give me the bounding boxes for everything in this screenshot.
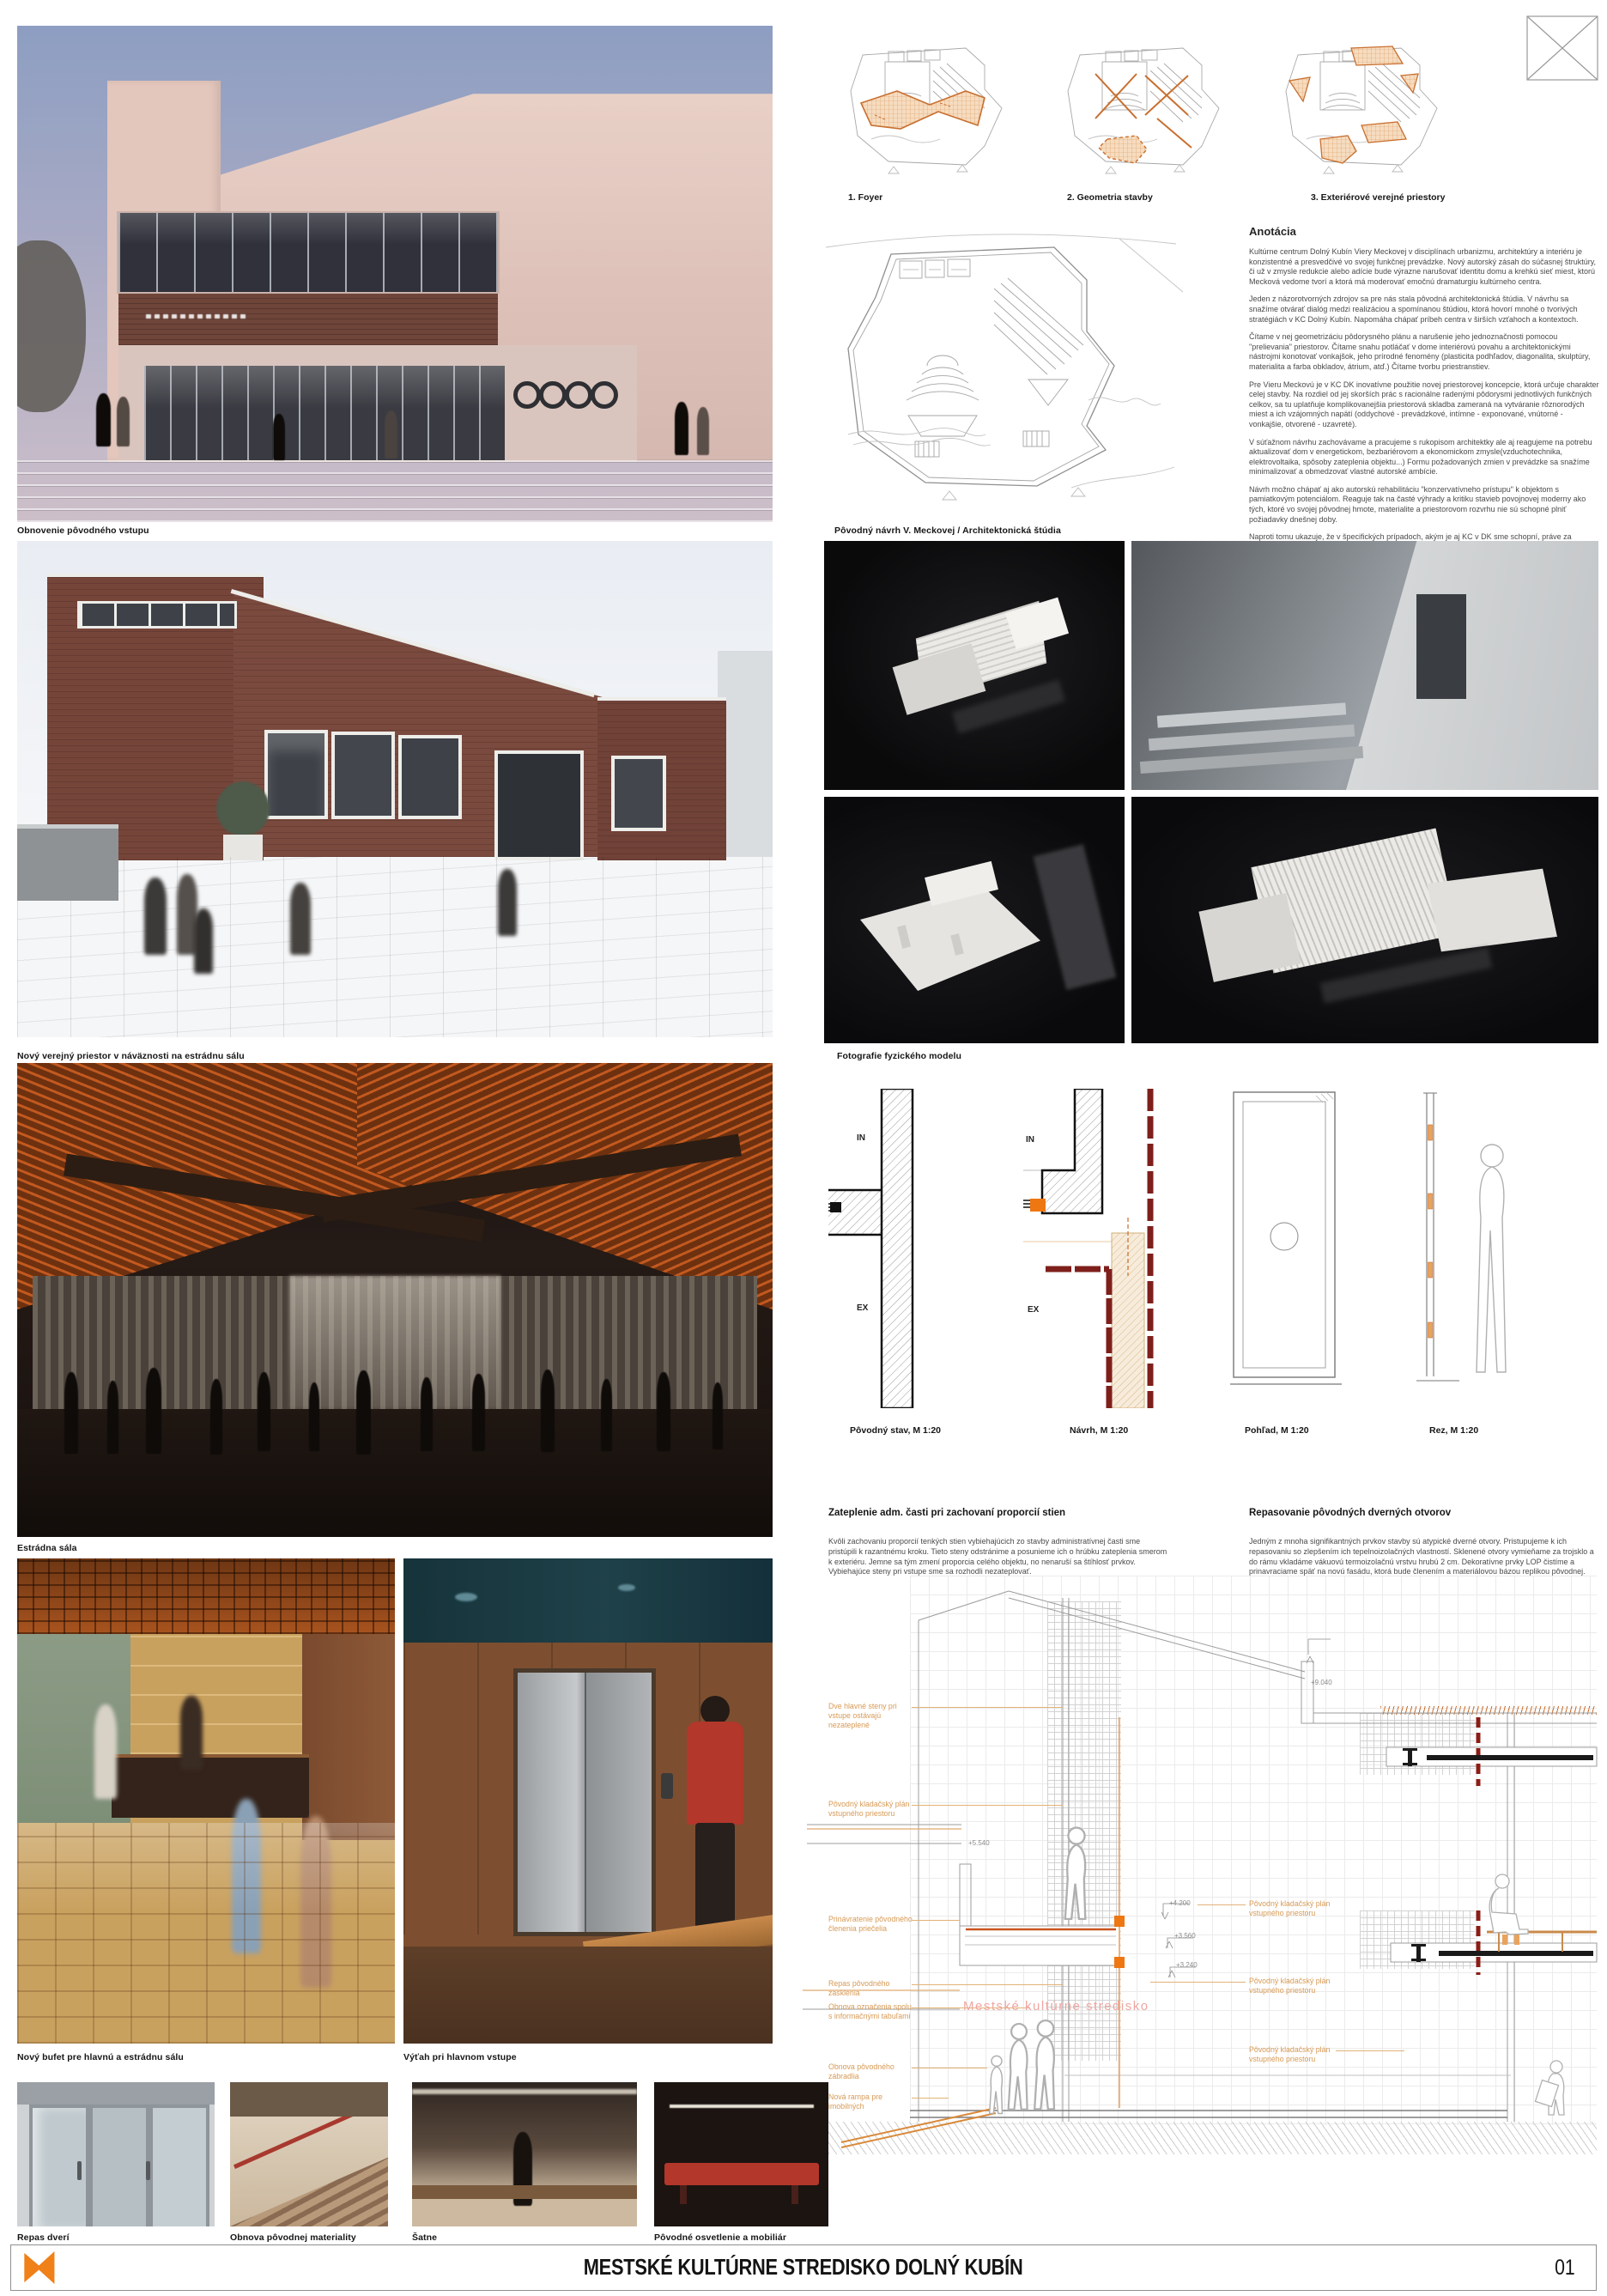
window — [398, 735, 462, 819]
plan-label-foyer: 1. Foyer — [848, 192, 882, 203]
model-step — [1157, 702, 1346, 727]
plan-label-geometry: 2. Geometria stavby — [1067, 192, 1153, 203]
section-label: Pôvodný kladačský plán vstupného priesto… — [1249, 1977, 1333, 1995]
page-number: 01 — [1555, 2256, 1575, 2281]
pavement — [17, 857, 773, 1037]
caption-floorplan: Pôvodný návrh V. Meckovej / Architektoni… — [834, 525, 1061, 536]
model-shadow — [1034, 844, 1117, 990]
model-floor-plane — [860, 886, 1040, 991]
dancer — [107, 1381, 118, 1454]
detail-door-elevation — [1230, 1089, 1342, 1398]
photo-entrance-restored — [17, 26, 773, 522]
model-photo-1 — [824, 541, 1125, 790]
dancer — [309, 1382, 319, 1451]
annotation-paragraph: Čítame v nej geometrizáciu pôdorysného p… — [1249, 332, 1599, 372]
presentation-board: Obnovenie pôvodného vstupu 1. Foyer 2. G… — [0, 0, 1607, 2296]
model-photo-2 — [1131, 541, 1598, 790]
leader-line — [1198, 1904, 1246, 1905]
pedestrian-blurred — [290, 883, 311, 955]
brick-band — [118, 294, 498, 345]
retaining-wall — [17, 824, 118, 901]
dancer — [421, 1377, 433, 1451]
in-label: IN — [857, 1133, 865, 1143]
leader-line — [912, 1805, 1063, 1806]
footer-bar: MESTSKÉ KULTÚRNE STREDISKO DOLNÝ KUBÍN 0… — [10, 2244, 1597, 2291]
leader-line — [912, 1984, 1063, 1985]
model-step — [1140, 746, 1363, 774]
in-label: IN — [1026, 1135, 1034, 1145]
detail-label-proposal: Návrh, M 1:20 — [1070, 1425, 1128, 1436]
text-block-title-doors: Repasovanie pôvodných dverných otvorov — [1249, 1508, 1451, 1518]
model-opening — [1416, 594, 1466, 699]
pedestrian — [273, 414, 285, 460]
caption-elevator: Výťah pri hlavnom vstupe — [403, 2052, 517, 2062]
section-label: Pôvodný kladačský plán vstupného priesto… — [1249, 1899, 1333, 1918]
caption-materiality: Obnova pôvodnej materiality — [230, 2232, 356, 2243]
model-volume — [1005, 598, 1069, 650]
transom — [17, 2082, 215, 2105]
annotation-paragraph: Kultúrne centrum Dolný Kubín Viery Mecko… — [1249, 247, 1599, 287]
floorplan-drawing — [814, 220, 1188, 512]
bench-leg — [791, 2185, 798, 2204]
annotation-paragraph: Návrh možno chápať aj ako autorskú rehab… — [1249, 485, 1599, 525]
dancer — [472, 1374, 485, 1451]
tree — [216, 781, 270, 836]
detail-door-section — [1408, 1089, 1537, 1402]
caption-lighting: Pôvodné osvetlenie a mobiliár — [654, 2232, 786, 2243]
photo-buffet — [17, 1558, 395, 2044]
level-dimension: +9.040 — [1311, 1679, 1332, 1686]
pedestrian — [96, 393, 111, 446]
annotation-paragraph: Jeden z názorotvorných zdrojov sa pre ná… — [1249, 295, 1599, 325]
light-bar — [670, 2105, 814, 2108]
model-volume — [1427, 859, 1557, 961]
caption-satne: Šatne — [412, 2232, 437, 2243]
bar-counter — [112, 1754, 309, 1818]
detail-label-section: Rez, M 1:20 — [1429, 1425, 1478, 1436]
level-dimension: +4.200 — [1169, 1899, 1191, 1907]
bench-leg — [680, 2185, 687, 2204]
caption-models: Fotografie fyzického modelu — [837, 1051, 961, 1061]
caption-doors: Repas dverí — [17, 2232, 70, 2243]
section-label: Pôvodný kladačský plán vstupného priesto… — [828, 1800, 913, 1819]
leader-line — [1336, 2050, 1404, 2051]
logo-circles — [513, 381, 616, 421]
wood-column — [302, 1634, 395, 1840]
window — [264, 730, 328, 819]
window-band — [118, 213, 498, 292]
detail-label-original: Pôvodný stav, M 1:20 — [850, 1425, 941, 1436]
aquarium-band — [403, 1558, 773, 1643]
section-label: Nová rampa pre imobilných — [828, 2093, 913, 2111]
detail-label-elevation: Pohľad, M 1:20 — [1245, 1425, 1309, 1436]
entrance-door — [494, 750, 584, 860]
model-wall-plane — [1346, 541, 1598, 790]
leader-line — [912, 2098, 949, 2099]
model-step — [1149, 725, 1355, 751]
dancer — [258, 1372, 270, 1451]
leader-line — [912, 2068, 987, 2068]
pedestrian — [697, 407, 709, 455]
pedestrian — [675, 402, 688, 455]
window — [331, 732, 395, 819]
window — [611, 756, 666, 831]
pedestrian-blurred — [194, 908, 213, 974]
photo-staircase — [230, 2082, 388, 2226]
window-glow — [289, 1276, 500, 1409]
section-linework — [790, 1541, 1607, 2237]
photo-satne — [412, 2082, 637, 2226]
steps — [17, 460, 773, 522]
dancer — [657, 1372, 670, 1451]
section-drawing — [790, 1541, 1607, 2237]
photo-lighting-furniture — [654, 2082, 828, 2226]
photo-new-public-space — [17, 541, 773, 1037]
section-label: Dve hlavné steny pri vstupe ostávajú nez… — [828, 1702, 913, 1730]
door-handle — [77, 2161, 82, 2180]
annotation-paragraph: Pre Vieru Meckovú je v KC DK inovatívne … — [1249, 380, 1599, 430]
pedestrian-blurred — [144, 878, 167, 955]
door-leaf — [149, 2105, 209, 2226]
section-label: Pôvodný kladačský plán vstupného priesto… — [1249, 2045, 1333, 2064]
elevator-door — [513, 1668, 656, 1936]
photo-elevator — [403, 1558, 773, 2044]
building-sign — [146, 314, 249, 319]
pedestrian — [117, 397, 130, 446]
dancer — [64, 1372, 78, 1454]
entrance-glazing — [144, 366, 505, 460]
photo-estradna-sala — [17, 1063, 773, 1537]
model-photo-4 — [1131, 797, 1598, 1043]
coffered-ceiling — [17, 1558, 395, 1634]
dancer — [210, 1379, 222, 1455]
person-blurred — [180, 1696, 203, 1770]
tiled-floor — [17, 1823, 395, 2044]
section-label: Obnova pôvodného zábradlia — [828, 2062, 913, 2081]
section-label: Prinávratenie pôvodného členenia priečel… — [828, 1915, 913, 1934]
pedestrian — [385, 410, 397, 459]
dancer — [356, 1370, 371, 1455]
bar-back-shelves — [130, 1634, 302, 1754]
leader-line — [912, 1707, 1063, 1708]
section-label: Obnova označenia spolu s informačnými ta… — [828, 2002, 913, 2021]
counter — [412, 2185, 637, 2199]
upper-wall-shadow — [230, 2082, 388, 2117]
detail-proposal — [1023, 1089, 1171, 1408]
board-title-wrap: MESTSKÉ KULTÚRNE STREDISKO DOLNÝ KUBÍN — [11, 2254, 1596, 2281]
plan-label-exterior: 3. Exteriérové verejné priestory — [1311, 192, 1445, 203]
plan-diagram-geometry — [1054, 36, 1239, 186]
leader-line — [912, 1920, 960, 1921]
caption-buffet: Nový bufet pre hlavnú a estrádnu sálu — [17, 2052, 184, 2062]
annotation-paragraph: V súťažnom návrhu zachovávame a pracujem… — [1249, 438, 1599, 477]
caption-entrance: Obnovenie pôvodného vstupu — [17, 525, 149, 536]
photo-doors — [17, 2082, 215, 2226]
model-volume — [893, 643, 986, 715]
ceiling-light — [412, 2089, 637, 2094]
dancer — [146, 1368, 161, 1454]
plan-diagram-exterior — [1272, 36, 1457, 186]
annotation-title: Anotácia — [1249, 225, 1599, 238]
trim-mark-icon — [1526, 15, 1598, 81]
call-button-panel — [661, 1773, 673, 1799]
dancer — [713, 1382, 723, 1449]
door-handle — [146, 2161, 150, 2180]
board-title: MESTSKÉ KULTÚRNE STREDISKO DOLNÝ KUBÍN — [584, 2254, 1023, 2281]
door-leaf — [89, 2105, 149, 2226]
section-watermark: Mestské kultúrne stredisko — [963, 1999, 1149, 2014]
section-label: Repas pôvodného zasklenia — [828, 1979, 913, 1998]
dancer — [541, 1370, 555, 1452]
text-block-title-insulation: Zateplenie adm. časti pri zachovaní prop… — [828, 1508, 1065, 1518]
floor — [403, 1947, 773, 2044]
level-dimension: +5.540 — [968, 1839, 990, 1847]
plan-diagram-foyer — [837, 36, 1022, 186]
ex-label: EX — [1028, 1305, 1039, 1315]
dancer — [601, 1379, 612, 1451]
clerestory — [77, 601, 237, 629]
level-dimension: +3.560 — [1174, 1932, 1196, 1940]
person-blurred — [94, 1704, 117, 1799]
person-red — [676, 1696, 755, 1936]
caption-public-space: Nový verejný priestor v náväznosti na es… — [17, 1051, 245, 1061]
pedestrian-blurred — [498, 869, 517, 936]
model-photo-3 — [824, 797, 1125, 1043]
caption-estradna-sala: Estrádna sála — [17, 1543, 77, 1553]
leader-line — [1150, 1982, 1246, 1983]
ex-label: EX — [857, 1303, 868, 1313]
red-bench — [664, 2163, 819, 2185]
level-dimension: +3.240 — [1176, 1961, 1198, 1969]
